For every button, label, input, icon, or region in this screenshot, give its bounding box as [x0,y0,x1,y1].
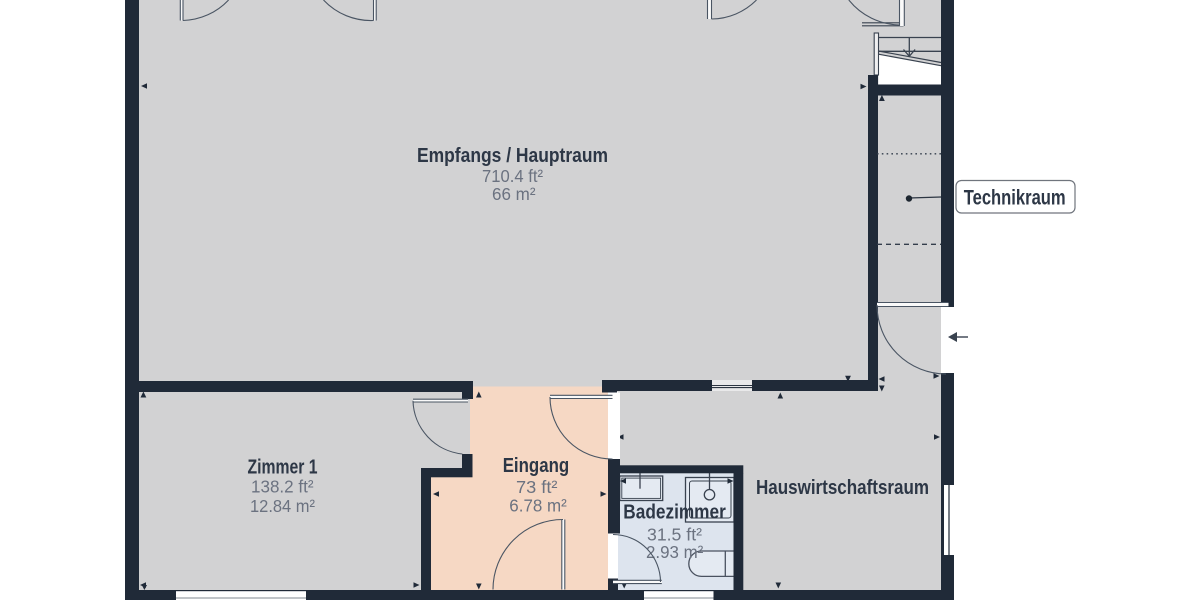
svg-text:Badezimmer: Badezimmer [623,502,726,524]
svg-text:710.4 ft²: 710.4 ft² [482,166,543,186]
svg-text:Technikraum: Technikraum [964,186,1066,210]
svg-text:Empfangs / Hauptraum: Empfangs / Hauptraum [417,145,608,167]
svg-text:66 m²: 66 m² [492,184,536,204]
svg-text:138.2 ft²: 138.2 ft² [251,477,314,497]
svg-text:Zimmer 1: Zimmer 1 [248,457,318,479]
svg-text:Eingang: Eingang [503,455,570,477]
svg-text:Hauswirtschaftsraum: Hauswirtschaftsraum [756,477,929,499]
svg-text:6.78 m²: 6.78 m² [509,496,567,516]
svg-text:12.84 m²: 12.84 m² [250,496,315,516]
svg-text:73 ft²: 73 ft² [516,477,558,497]
